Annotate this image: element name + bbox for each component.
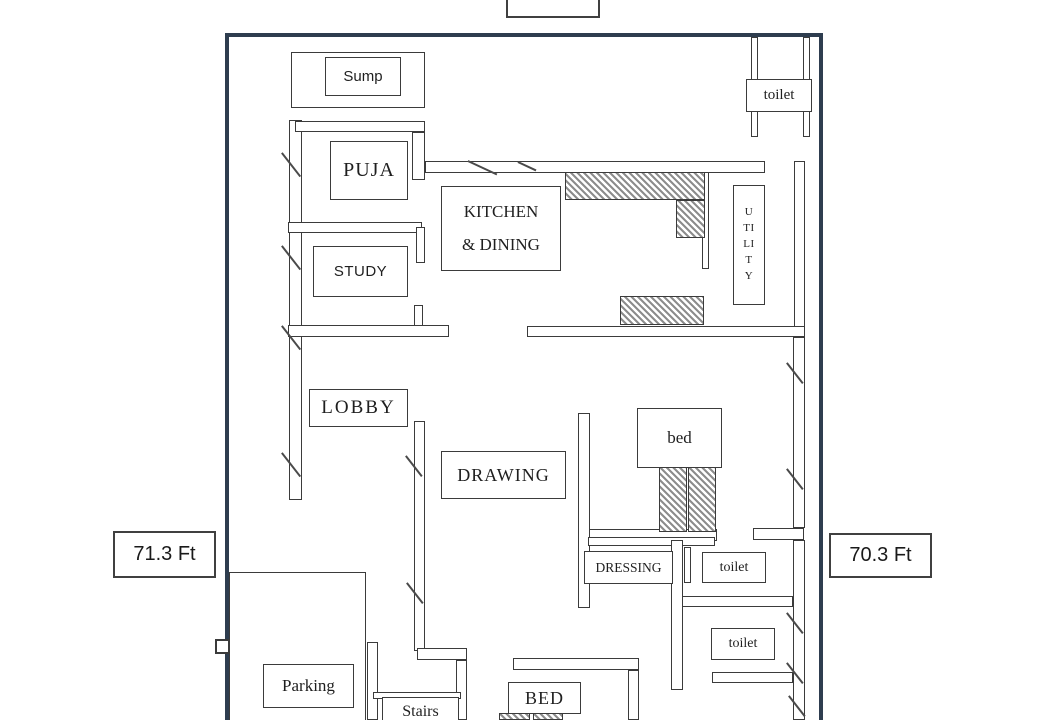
wall-bed2-top [513, 658, 639, 670]
wall-toilet-top-left-lower [751, 110, 758, 137]
kitchen-counter-hatch [565, 172, 705, 200]
utility-label-box: U TI LI T Y [733, 185, 765, 305]
utility-letter: T [745, 253, 752, 269]
wall-toilet-bottom-bottom [712, 672, 793, 683]
dimension-left: 71.3 Ft [113, 531, 216, 578]
dimension-top: 45.6 Ft [506, 0, 600, 18]
bed-hatch-right [688, 467, 716, 532]
toilet-bottom-label-box: toilet [711, 628, 775, 660]
toilet-bottom-label: toilet [729, 636, 758, 652]
lobby-label: LOBBY [321, 397, 395, 419]
floor-plan-canvas: 45.6 Ft 71.3 Ft 70.3 Ft Sump PUJA toilet… [0, 0, 1037, 720]
utility-letter: Y [745, 269, 753, 285]
lobby-label-box: LOBBY [309, 389, 408, 427]
bed-label: bed [667, 428, 692, 448]
wall-drawing-stub [417, 648, 467, 660]
drawing-label: DRAWING [457, 465, 550, 486]
dimension-right-label: 70.3 Ft [849, 544, 911, 567]
study-label-box: STUDY [313, 246, 408, 297]
wall-right-mid [793, 337, 805, 528]
dressing-label: DRESSING [595, 560, 661, 576]
toilet-mid-label-box: toilet [702, 552, 766, 583]
wall-left-main [289, 120, 302, 500]
kitchen-label-line2: & DINING [462, 229, 540, 261]
sump-label: Sump [343, 68, 382, 85]
bed-label-box: bed [637, 408, 722, 468]
bed-bottom-label-box: BED [508, 682, 581, 714]
kitchen-label-line1: KITCHEN [464, 196, 539, 228]
bed2-hatch-left [499, 713, 530, 720]
puja-label-box: PUJA [330, 141, 408, 200]
stairs-label: Stairs [402, 703, 438, 720]
wall-dressing-stub [684, 547, 691, 583]
dressing-label-box: DRESSING [584, 551, 673, 584]
utility-letter: U [745, 205, 753, 221]
wall-toilet-top-right [803, 37, 810, 80]
toilet-top-label-box: toilet [746, 79, 812, 112]
study-label: STUDY [334, 263, 387, 280]
wall-dressing-top [588, 537, 715, 546]
wall-drawing-left [414, 421, 425, 651]
wall-right-upper [794, 161, 805, 333]
dimension-right: 70.3 Ft [829, 533, 932, 578]
toilet-mid-label: toilet [720, 560, 749, 576]
wall-study-top [288, 222, 422, 233]
wall-right-stub [753, 528, 804, 540]
wall-lobby-top [288, 325, 449, 337]
puja-label: PUJA [343, 159, 395, 182]
bed2-hatch-right [533, 713, 563, 720]
wall-bed2-right [628, 670, 639, 720]
sump-label-box: Sump [325, 57, 401, 96]
utility-letter: LI [743, 237, 754, 253]
dimension-top-label: 45.6 Ft [522, 0, 584, 5]
bed-hatch-left [659, 467, 687, 532]
wall-puja-right-stub [412, 132, 425, 180]
kitchen-platform-hatch [620, 296, 704, 325]
wall-toilet-top-left [751, 37, 758, 80]
wall-puja-top [295, 121, 425, 132]
wall-toilet-top-right-lower [803, 110, 810, 137]
toilet-top-label: toilet [764, 87, 795, 104]
wall-kitchen-bottom [527, 326, 805, 337]
drawing-label-box: DRAWING [441, 451, 566, 499]
bed-bottom-label: BED [525, 688, 564, 709]
wall-study-top-stub [416, 227, 425, 263]
utility-letter: TI [743, 221, 754, 237]
wall-lobby-top-stub [414, 305, 423, 326]
kitchen-label-box: KITCHEN & DINING [441, 186, 561, 271]
stairs-label-box: Stairs [382, 697, 459, 720]
wall-toilet-mid-bottom [682, 596, 793, 607]
wall-parking-right [367, 642, 378, 720]
parking-label-box: Parking [263, 664, 354, 708]
kitchen-counter-corner-hatch [676, 200, 705, 238]
boundary-marker-square [215, 639, 230, 654]
dimension-left-label: 71.3 Ft [133, 543, 195, 566]
parking-label: Parking [282, 676, 335, 696]
